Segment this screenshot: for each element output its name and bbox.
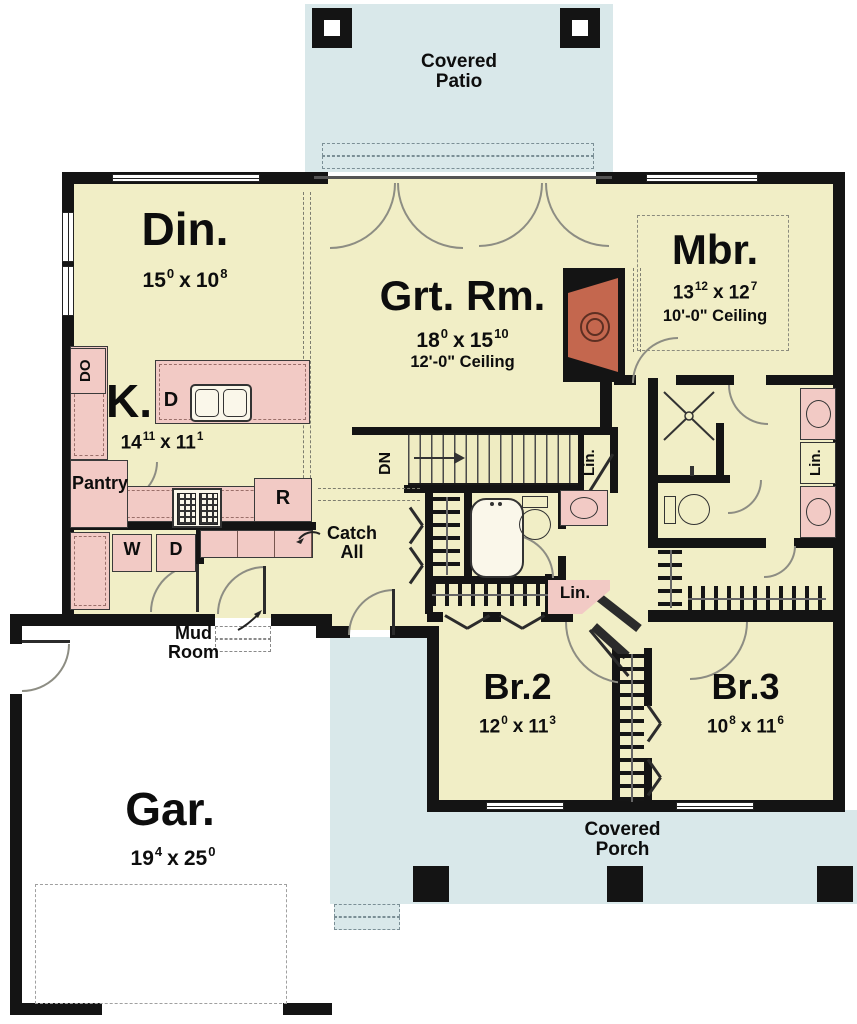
garage-dim: 194x250 (118, 846, 228, 870)
garage-label: Gar. (100, 786, 240, 834)
vanity-sink (570, 497, 598, 519)
ceiling-break-line (310, 192, 311, 488)
door-arc (545, 183, 609, 247)
window (646, 174, 758, 182)
range-burners-icon (199, 493, 218, 525)
window (676, 802, 754, 810)
wall (326, 626, 350, 638)
kitchen-label: K. (98, 378, 160, 426)
fireplace-ring-icon (586, 318, 604, 336)
bathtub (470, 498, 524, 578)
great-room-dim: 180x1510 (395, 328, 530, 352)
wall (390, 626, 430, 638)
wall (558, 556, 566, 584)
door-leaf (499, 614, 523, 630)
window (62, 266, 74, 316)
pantry-cabinet (70, 460, 128, 528)
washer-label: W (120, 540, 144, 559)
patio-door-track (314, 176, 612, 179)
toilet-bowl (678, 494, 710, 525)
bedroom2-dim: 120x113 (470, 716, 565, 737)
tub-faucet-icon (490, 502, 494, 506)
closet-rod (618, 654, 644, 802)
wall (648, 610, 845, 622)
stairs-arrow-line (414, 457, 456, 459)
garage-door-outline (35, 884, 287, 1004)
angled-wall (196, 564, 199, 612)
closet-rod (688, 586, 826, 610)
stairs (408, 433, 578, 485)
door-arc (397, 183, 463, 249)
tub-faucet-icon (498, 502, 502, 506)
dishwasher-label: D (158, 390, 184, 411)
ceiling-break-line (318, 500, 420, 501)
catch-all-label: CatchAll (316, 524, 388, 561)
door-arc (348, 589, 394, 635)
shower-icon (660, 388, 718, 444)
bedroom2-label: Br.2 (455, 668, 580, 705)
window (112, 174, 260, 182)
linen-label-stair: Lin. (582, 436, 598, 490)
floor-plan: CoveredPatio CoveredPorch Din. 150x108 G… (0, 0, 857, 1024)
bedroom3-label: Br.3 (683, 668, 808, 705)
master-bedroom-ceiling: 10'-0" Ceiling (650, 308, 780, 325)
toilet-bowl (519, 509, 551, 540)
wall (766, 375, 833, 385)
wall (10, 694, 22, 1015)
patio-label: CoveredPatio (380, 52, 538, 92)
stairs-arrow-head (454, 452, 465, 464)
linen-label-master: Lin. (808, 442, 824, 484)
door-arc (22, 644, 70, 692)
door-leaf (409, 565, 424, 585)
master-bedroom-label: Mbr. (645, 228, 785, 272)
dining-dim: 150x108 (120, 268, 250, 292)
wall (648, 378, 658, 546)
door-leaf (466, 614, 490, 630)
master-bedroom-dim: 1312x127 (665, 282, 765, 303)
door-arc (728, 385, 768, 425)
sink-basin (223, 389, 247, 417)
door-arc (479, 183, 543, 247)
wall (10, 614, 22, 644)
door-leaf (647, 723, 662, 743)
refrigerator-label: R (270, 488, 296, 509)
ceiling-break-line (633, 268, 634, 352)
toilet-tank (522, 496, 548, 508)
great-room-label: Grt. Rm. (350, 274, 575, 318)
door-arc (330, 183, 396, 249)
door-leaf (22, 640, 70, 643)
kitchen-dim: 1411x111 (112, 432, 212, 453)
door-leaf (647, 705, 662, 725)
double-oven-label: DO (78, 350, 94, 392)
laundry-counter (70, 532, 110, 610)
dryer-label: D (164, 540, 188, 559)
sink-basin (195, 389, 219, 417)
range-burners-icon (177, 493, 196, 525)
door-arc (728, 480, 762, 514)
wall (648, 538, 766, 548)
closet-rod (432, 582, 560, 606)
door-leaf (521, 614, 545, 630)
wall (600, 380, 612, 435)
door-arc (217, 566, 265, 614)
wall (283, 1003, 332, 1015)
door-leaf (444, 614, 468, 630)
dining-label: Din. (110, 206, 260, 254)
wall (644, 648, 652, 706)
vanity-sink (806, 400, 831, 428)
wall (10, 1003, 102, 1015)
closet-rod (658, 550, 682, 608)
wall (648, 475, 730, 483)
shower-head-icon (690, 466, 694, 476)
vanity-sink (806, 498, 831, 526)
wall (676, 375, 734, 385)
door-leaf (409, 507, 424, 527)
ceiling-break-line (303, 192, 304, 488)
porch-label: CoveredPorch (570, 820, 675, 860)
window (62, 212, 74, 262)
angled-wall (263, 566, 266, 614)
closet-rod (432, 497, 460, 575)
mud-room-label: MudRoom (146, 624, 241, 661)
angled-wall (392, 589, 395, 635)
toilet-tank (664, 496, 676, 524)
linen-label-hall: Lin. (552, 584, 598, 602)
wall (427, 626, 439, 810)
wall (610, 427, 618, 493)
door-arc (764, 546, 796, 578)
stairs-dn-label: DN (378, 438, 395, 488)
ceiling-break-line (318, 488, 420, 489)
door-leaf (409, 525, 424, 545)
door-leaf (409, 547, 424, 567)
great-room-ceiling: 12'-0" Ceiling (385, 354, 540, 371)
pantry-label: Pantry (66, 474, 134, 493)
wall (794, 538, 833, 548)
window (486, 802, 564, 810)
bedroom3-dim: 108x116 (698, 716, 793, 737)
